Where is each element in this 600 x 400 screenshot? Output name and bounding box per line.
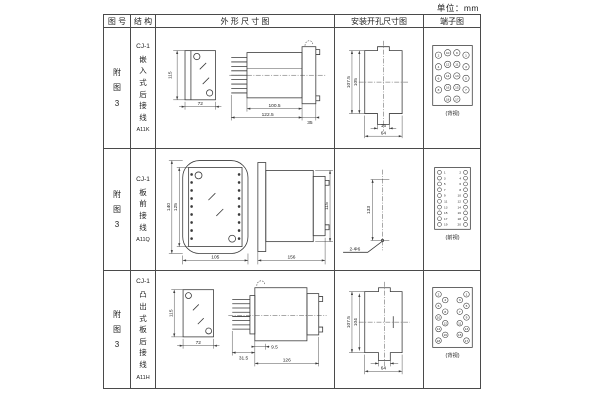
install-cell: 133 2-Φ6 (335, 149, 424, 271)
screw-slash-marks (192, 304, 203, 324)
terminal-circle (437, 222, 441, 226)
install-drawing-a11k: 107.5 105 16 64 (335, 29, 423, 148)
front-inner-outline (188, 167, 241, 246)
terminal-number: 17 (455, 97, 459, 101)
terminal-circle (463, 170, 467, 174)
structure-desc: 凸出式板后接线 (138, 289, 148, 370)
screw-hole (185, 292, 191, 298)
dim-height-inner: 105 (353, 77, 359, 85)
outline-drawing-a11q: 140 125 105 156 115 (157, 150, 334, 270)
dim-front-width: 105 (211, 254, 219, 260)
terminal-circle (463, 182, 467, 186)
terminal-number: 14 (436, 327, 440, 331)
dimension-arrows (231, 107, 319, 118)
dimension-arrows (176, 50, 219, 107)
rear-tabs (318, 296, 322, 331)
dim-slot: 16 (381, 122, 387, 128)
dim-height-outer: 140 (165, 202, 171, 210)
pin-plate (249, 295, 254, 333)
terminal-number: 6 (437, 77, 439, 81)
terminal-number: 1 (465, 53, 467, 57)
dimension-arrows (173, 289, 217, 346)
dim-front-width: 72 (197, 101, 203, 107)
rear-block (313, 176, 325, 235)
terminal-number: 11 (444, 199, 447, 203)
terminal-caption: (前视) (445, 232, 459, 240)
terminal-circle (437, 205, 441, 209)
unit-label: 单位：mm (437, 2, 479, 14)
terminal-number: 2 (437, 292, 439, 296)
terminal-number: 19 (444, 222, 448, 226)
terminal-number: 10 (436, 315, 440, 319)
terminal-number: 6 (437, 304, 439, 308)
dimension-arrows (351, 291, 402, 372)
terminal-diagram-a11q: 1357911131517192468101214161820 (前视) (425, 160, 480, 260)
terminal-number: 18 (457, 216, 461, 220)
dim-body-length: 100.5 (268, 103, 280, 109)
dim-total-length: 122.5 (261, 111, 273, 117)
terminal-holes: 1357911131517192468101214161820 (437, 170, 467, 226)
figure-no: 附图3 (112, 307, 122, 353)
terminal-number: 14 (445, 74, 449, 78)
terminal-number: 13 (455, 74, 459, 78)
outline-cell: 115 72 31.5 9.5 126 (156, 271, 335, 389)
terminal-number: 3 (465, 65, 467, 69)
dimension-lines (257, 170, 332, 264)
dim-height-outer: 107.5 (346, 315, 352, 327)
dimension-lines (349, 291, 402, 374)
outline-drawing-a11k: 115 72 100.5 122.5 35 (157, 29, 334, 148)
terminal-number: 4 (444, 298, 446, 302)
dim-height-inner: 125 (173, 202, 179, 210)
terminal-circle (437, 182, 441, 186)
hole-spec-label: 2-Φ6 (350, 246, 361, 252)
terminal-number: 13 (444, 205, 448, 209)
dim-flange: 35 (307, 120, 313, 126)
front-view: 115 72 (168, 289, 219, 348)
structure-code: A11Q (136, 237, 150, 243)
install-drawing-a11q: 133 2-Φ6 (335, 150, 423, 270)
terminal-number: 9 (443, 193, 445, 197)
terminal-number: 17 (444, 216, 448, 220)
structure-model: CJ-1 (136, 43, 150, 50)
front-outline (183, 289, 213, 336)
header-figure-no: 图 号 (104, 15, 131, 28)
terminal-circle (437, 216, 441, 220)
screw-hole (228, 235, 235, 242)
front-plate (257, 162, 265, 251)
terminal-circle (463, 176, 467, 180)
structure-code: A11K (136, 127, 149, 133)
terminal-number: 6 (459, 182, 461, 186)
terminal-holes: 210914121136141358161571817 (435, 50, 469, 103)
body-outline (254, 287, 306, 340)
dim-pins: 31.5 (238, 355, 248, 361)
header-install: 安装开孔尺寸图 (335, 15, 424, 28)
dimension-lines (371, 179, 390, 240)
structure-model: CJ-1 (136, 278, 150, 285)
structure-desc: 板前接线 (138, 187, 148, 234)
side-view: 156 115 (257, 162, 332, 264)
terminal-number: 3 (443, 176, 445, 180)
body-outline (265, 170, 312, 241)
terminal-number: 3 (458, 298, 460, 302)
terminal-number: 1 (443, 170, 445, 174)
side-view: 31.5 9.5 126 (228, 280, 326, 366)
outline-drawing-a11h: 115 72 31.5 9.5 126 (157, 272, 334, 388)
terminal-number: 9 (455, 51, 457, 55)
terminal-diagram-a11h: 246810121416181357911131517 (背视) (425, 280, 480, 380)
figure-no: 附图3 (112, 65, 122, 111)
terminal-caption: (背视) (445, 109, 459, 117)
drawing-table: 图 号 结 构 外 形 尺 寸 图 安装开孔尺寸图 端子图 附图3 CJ-1 嵌… (103, 14, 481, 389)
terminal-number: 18 (436, 338, 440, 342)
dimension-arrows (351, 50, 402, 137)
terminal-circle (463, 199, 467, 203)
rear-block (306, 293, 318, 334)
outline-cell: 115 72 100.5 122.5 35 (156, 28, 335, 149)
terminal-number: 2 (437, 53, 439, 57)
terminal-number: 2 (459, 170, 461, 174)
terminal-number: 15 (458, 332, 462, 336)
terminal-circle (463, 205, 467, 209)
dimension-lines (171, 289, 219, 348)
terminal-number: 16 (443, 332, 447, 336)
dimension-lines (349, 50, 402, 138)
dim-side-height: 115 (323, 201, 329, 209)
terminal-circle (437, 210, 441, 214)
terminal-diagram-a11k: 210914121136141358161571817 (背视) (425, 38, 480, 138)
structure-cell: CJ-1 嵌入式后接线 A11K (131, 28, 156, 149)
terminal-number: 13 (464, 327, 468, 331)
terminal-number: 1 (465, 292, 467, 296)
figure-no: 附图3 (112, 187, 122, 233)
front-view: 115 72 (167, 50, 221, 109)
terminal-number: 8 (459, 187, 461, 191)
dim-lip: 9.5 (271, 344, 278, 350)
structure-code: A11H (136, 375, 149, 381)
terminal-circle (463, 216, 467, 220)
terminal-number: 7 (443, 187, 445, 191)
terminal-number: 10 (445, 51, 449, 55)
dim-front-height: 115 (168, 309, 174, 317)
terminal-circle (437, 187, 441, 191)
terminal-number: 8 (437, 88, 439, 92)
terminal-pins (232, 299, 250, 329)
dim-length: 156 (287, 254, 295, 260)
terminal-number: 8 (444, 309, 446, 313)
terminal-number: 9 (465, 315, 467, 319)
terminal-number: 7 (465, 88, 467, 92)
terminal-dot-columns (191, 174, 238, 241)
dim-height-outer: 107.5 (346, 75, 352, 87)
install-drawing-a11h: 107.5 104 64 (335, 272, 423, 388)
dim-front-width: 72 (195, 339, 201, 345)
terminal-number: 14 (457, 205, 461, 209)
terminal-number: 12 (457, 199, 461, 203)
outline-cell: 140 125 105 156 115 (156, 149, 335, 271)
dim-height-inner: 104 (353, 317, 359, 325)
terminal-cell: 1357911131517192468101214161820 (前视) (424, 149, 481, 271)
terminal-cell: 210914121136141358161571817 (背视) (424, 28, 481, 149)
terminal-circle (463, 193, 467, 197)
terminal-number: 11 (458, 321, 461, 325)
figure-no-cell: 附图3 (104, 149, 131, 271)
screw-hole (195, 171, 202, 178)
terminal-number: 15 (455, 86, 459, 90)
structure-model: CJ-1 (136, 176, 150, 183)
terminal-number: 10 (457, 193, 461, 197)
screw-hole (206, 89, 212, 95)
terminal-number: 7 (458, 309, 460, 313)
terminal-caption: (背视) (445, 351, 459, 359)
structure-desc: 嵌入式后接线 (138, 54, 148, 124)
terminal-number: 12 (445, 63, 449, 67)
screw-slash-marks (208, 193, 223, 216)
front-view: 140 125 105 (165, 160, 247, 264)
terminal-number: 17 (464, 338, 468, 342)
terminal-number: 12 (443, 321, 447, 325)
front-outline (185, 50, 215, 99)
structure-cell: CJ-1 凸出式板后接线 A11H (131, 271, 156, 389)
side-view: 100.5 122.5 35 (229, 40, 326, 125)
terminal-number: 4 (437, 65, 439, 69)
terminal-circle (463, 210, 467, 214)
page: { "unit_label": "单位：mm", "header": { "fi… (0, 0, 600, 400)
terminal-number: 16 (445, 86, 449, 90)
terminal-block-outline (434, 167, 470, 229)
dim-hole-distance: 133 (366, 205, 372, 213)
terminal-cell: 246810121416181357911131517 (背视) (424, 271, 481, 389)
terminal-holes: 246810121416181357911131517 (435, 291, 469, 343)
terminal-number: 4 (459, 176, 461, 180)
header-structure: 结 构 (131, 15, 156, 28)
dim-width: 64 (381, 365, 387, 371)
header-terminal: 端子图 (424, 15, 481, 28)
center-lines (359, 40, 408, 130)
install-cell: 107.5 105 16 64 (335, 28, 424, 149)
latch-hook (305, 40, 313, 45)
dim-width: 64 (381, 130, 387, 136)
terminal-number: 15 (444, 211, 448, 215)
terminal-circle (437, 199, 441, 203)
terminal-number: 16 (457, 211, 461, 215)
structure-cell: CJ-1 板前接线 A11Q (131, 149, 156, 271)
terminal-circle (437, 193, 441, 197)
screw-hole (193, 53, 199, 59)
screw-slash-marks (199, 62, 208, 83)
dim-front-height: 115 (167, 71, 173, 79)
terminal-number: 5 (465, 77, 467, 81)
dim-length: 126 (282, 357, 290, 363)
terminal-number: 18 (445, 97, 449, 101)
terminal-number: 20 (457, 222, 461, 226)
dimension-lines (168, 160, 247, 264)
terminal-circle (463, 187, 467, 191)
screw-hole (205, 328, 211, 334)
terminal-number: 11 (455, 63, 458, 67)
terminal-circle (437, 170, 441, 174)
cutout-outline (365, 287, 402, 360)
header-outline: 外 形 尺 寸 图 (156, 15, 335, 28)
terminal-number: 5 (465, 304, 467, 308)
terminal-number: 5 (443, 182, 445, 186)
install-cell: 107.5 104 64 (335, 271, 424, 389)
dimension-arrows (257, 170, 330, 261)
terminal-circle (463, 222, 467, 226)
latch-hook (256, 280, 264, 285)
figure-no-cell: 附图3 (104, 28, 131, 149)
terminal-circle (437, 176, 441, 180)
figure-no-cell: 附图3 (104, 271, 131, 389)
